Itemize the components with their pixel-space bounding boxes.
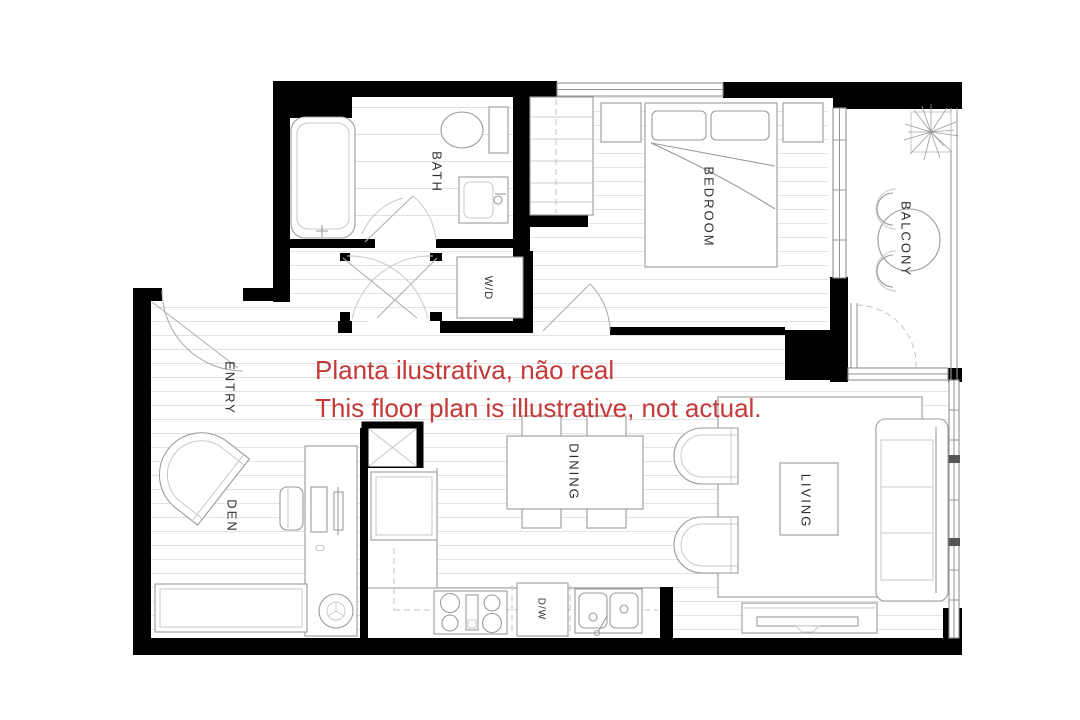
pillow-right <box>711 111 769 140</box>
label-living: LIVING <box>799 474 814 529</box>
bedroom-window <box>557 83 723 96</box>
stool <box>319 594 353 628</box>
dining-chair <box>522 507 561 528</box>
label-bath: BATH <box>430 151 445 193</box>
shaft-box <box>365 425 420 470</box>
living-window <box>948 380 960 638</box>
disclaimer-line-1: Planta ilustrativa, não real <box>315 355 614 385</box>
label-wd: W/D <box>482 276 494 300</box>
label-dw: D/W <box>536 598 547 620</box>
label-dining: DINING <box>567 443 582 501</box>
balcony-sill-band <box>848 368 948 380</box>
cooktop <box>434 591 507 634</box>
nightstand-left <box>601 103 641 142</box>
desk-chair <box>280 487 303 530</box>
pillow-left <box>652 111 706 140</box>
sofa <box>876 419 948 601</box>
vanity-sink <box>459 177 508 223</box>
bookshelf <box>155 584 307 632</box>
label-den: DEN <box>225 499 240 532</box>
floor-plan-canvas: BATH W/D ENTRY DEN BEDROOM BALCONY DININ… <box>0 0 1080 720</box>
tv-console <box>742 603 877 633</box>
bedroom-closet <box>530 97 593 215</box>
kitchen-sink <box>575 589 642 636</box>
lounge-chair-bottom <box>674 517 738 573</box>
bedroom-balcony-window <box>833 108 846 278</box>
disclaimer-line-2: This floor plan is illustrative, not act… <box>315 393 762 423</box>
bathtub <box>291 117 355 238</box>
label-bedroom: BEDROOM <box>702 166 717 247</box>
potted-plant <box>904 104 959 160</box>
dining-chair <box>587 507 626 528</box>
lounge-chair-top <box>674 428 738 484</box>
label-balcony: BALCONY <box>899 201 914 277</box>
nightstand-right <box>783 103 823 142</box>
label-entry: ENTRY <box>223 361 238 415</box>
refrigerator <box>371 472 437 540</box>
floor-plan-page: BATH W/D ENTRY DEN BEDROOM BALCONY DININ… <box>0 0 1080 720</box>
